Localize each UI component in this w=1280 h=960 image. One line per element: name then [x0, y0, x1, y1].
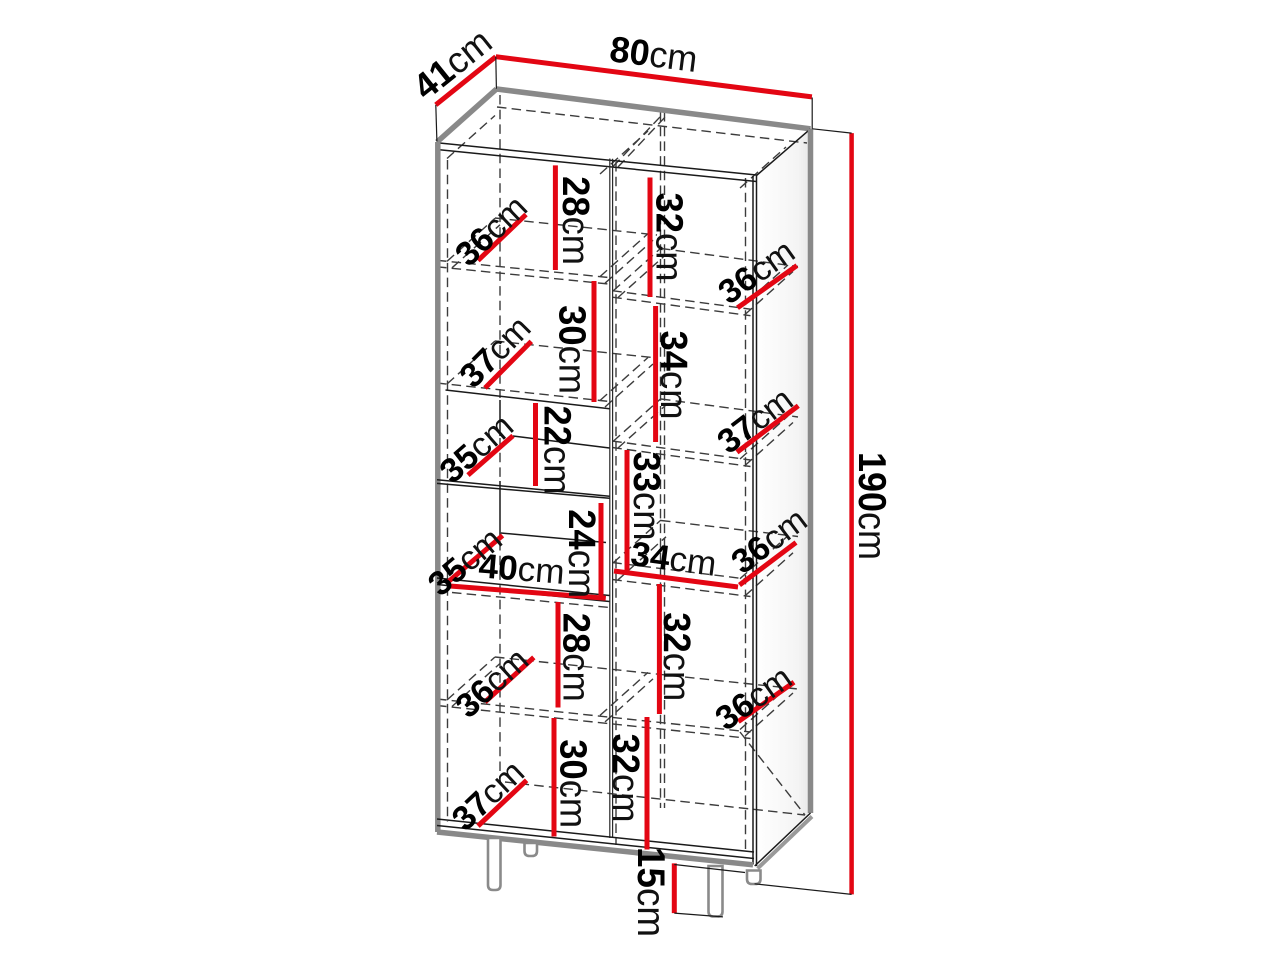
svg-text:24cm: 24cm [560, 509, 602, 598]
svg-text:28cm: 28cm [554, 176, 596, 265]
svg-text:28cm: 28cm [555, 613, 597, 702]
svg-text:190cm: 190cm [850, 452, 893, 560]
svg-text:22cm: 22cm [535, 406, 577, 495]
svg-text:30cm: 30cm [551, 305, 593, 394]
svg-text:33cm: 33cm [625, 452, 667, 541]
svg-text:32cm: 32cm [655, 612, 697, 701]
svg-text:15cm: 15cm [629, 847, 672, 937]
svg-text:40cm: 40cm [477, 547, 566, 592]
svg-text:30cm: 30cm [552, 739, 594, 828]
svg-text:32cm: 32cm [604, 734, 646, 823]
svg-text:34cm: 34cm [652, 331, 694, 420]
svg-text:32cm: 32cm [647, 193, 689, 282]
